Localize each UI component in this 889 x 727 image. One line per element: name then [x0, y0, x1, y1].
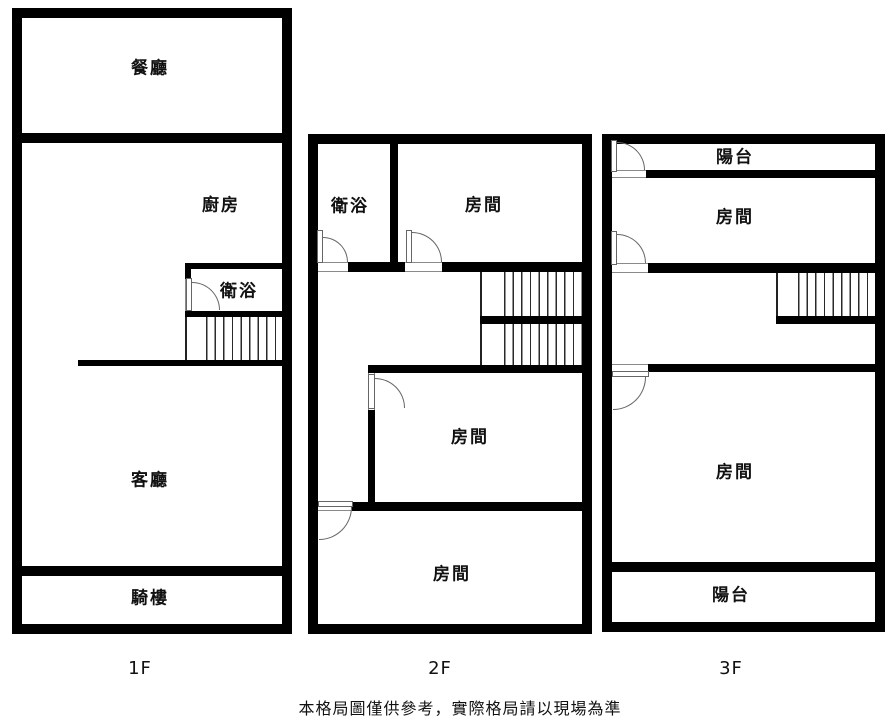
door-arc-2f-bath — [323, 237, 348, 262]
wall-1f-bath-top — [185, 263, 282, 269]
wall-3f-balcony-top-divider — [646, 170, 875, 178]
wall-3f-outer-top — [602, 134, 885, 144]
wall-3f-balcony-bottom-divider — [602, 562, 885, 572]
wall-1f-bath-bottom — [185, 311, 282, 317]
staircase-1f — [206, 317, 282, 360]
floorplan-image: 餐廳 廚房 衛浴 客廳 騎樓 1F 衛浴 — [0, 0, 889, 727]
stair-edge-3f — [776, 272, 778, 316]
door-leaf-2f-room-bottom — [318, 501, 353, 507]
room-label-room-top-2f: 房間 — [465, 198, 503, 215]
room-label-living: 客廳 — [131, 473, 169, 490]
stair-edge-2f-upper — [480, 272, 482, 316]
door-opening-2f-bath — [318, 262, 348, 272]
door-opening-3f-balcony-top — [612, 170, 646, 178]
room-label-room-main-3f: 房間 — [716, 465, 754, 482]
disclaimer-text: 本格局圖僅供參考，實際格局請以現場為準 — [298, 701, 621, 717]
wall-1f-arcade-divider — [12, 566, 292, 576]
door-leaf-2f-room-top — [406, 230, 412, 263]
wall-2f-outer-left — [308, 134, 318, 634]
room-label-bathroom-2f: 衛浴 — [331, 199, 369, 216]
door-arc-1f-bath — [192, 282, 220, 310]
wall-2f-toprooms-bottom-b — [442, 262, 582, 272]
door-arc-3f-balcony-top — [617, 142, 645, 170]
wall-1f-bath-left-stub — [185, 263, 191, 279]
wall-2f-outer-right — [582, 134, 592, 634]
wall-2f-toprooms-bottom-a — [348, 262, 405, 272]
wall-2f-bottomroom-top — [352, 502, 582, 511]
door-arc-2f-room-top — [412, 232, 442, 262]
staircase-3f — [798, 272, 875, 316]
wall-3f-stair-bottom — [776, 316, 875, 324]
room-label-arcade: 騎樓 — [131, 591, 169, 608]
wall-1f-outer-top — [12, 8, 292, 18]
wall-3f-outer-right — [875, 134, 885, 632]
door-arc-2f-room-middle — [375, 378, 405, 408]
room-label-balcony-bottom: 陽台 — [712, 588, 750, 605]
floor-label-2f: 2F — [428, 660, 452, 678]
wall-1f-halfwall — [78, 360, 292, 366]
door-opening-2f-room-top — [405, 262, 442, 272]
wall-2f-outer-top — [308, 134, 592, 144]
door-leaf-2f-bath — [317, 230, 323, 263]
wall-2f-mid — [368, 365, 592, 373]
wall-3f-roomtop-bottom — [648, 263, 875, 273]
door-arc-2f-room-bottom — [319, 507, 352, 540]
floor-label-1f: 1F — [128, 660, 152, 678]
staircase-2f-lower — [504, 324, 582, 365]
door-arc-3f-room-main — [613, 377, 646, 410]
wall-1f-dining-divider — [12, 133, 292, 143]
floor-label-3f: 3F — [719, 660, 743, 678]
room-label-room-bottom-2f: 房間 — [433, 567, 471, 584]
wall-2f-bath-room-divider — [390, 134, 398, 272]
wall-1f-outer-left — [12, 8, 22, 634]
room-label-dining: 餐廳 — [131, 61, 169, 78]
door-leaf-3f-room-main — [612, 371, 649, 377]
wall-3f-mid — [648, 364, 875, 372]
wall-1f-outer-right — [282, 8, 292, 634]
door-leaf-3f-balcony-top — [611, 140, 617, 172]
wall-1f-outer-bottom — [12, 624, 292, 634]
wall-2f-midroom-left — [368, 410, 375, 505]
wall-3f-outer-bottom — [602, 622, 885, 632]
stair-edge-1f — [185, 317, 187, 360]
door-opening-3f-room-top — [612, 263, 648, 273]
wall-3f-outer-left — [602, 134, 612, 632]
wall-2f-stair-divider — [480, 316, 582, 324]
room-label-kitchen: 廚房 — [202, 198, 240, 215]
room-label-bathroom-1f: 衛浴 — [220, 284, 258, 301]
door-leaf-2f-room-middle — [368, 374, 375, 409]
staircase-2f-upper — [504, 272, 582, 316]
door-arc-3f-room-top — [617, 234, 646, 263]
room-label-balcony-top: 陽台 — [716, 150, 754, 167]
door-leaf-1f-bath — [186, 278, 192, 311]
stair-edge-2f-lower — [480, 324, 482, 365]
wall-2f-outer-bottom — [308, 624, 592, 634]
door-leaf-3f-room-top — [611, 231, 617, 265]
room-label-room-top-3f: 房間 — [716, 210, 754, 227]
room-label-room-middle-2f: 房間 — [451, 430, 489, 447]
